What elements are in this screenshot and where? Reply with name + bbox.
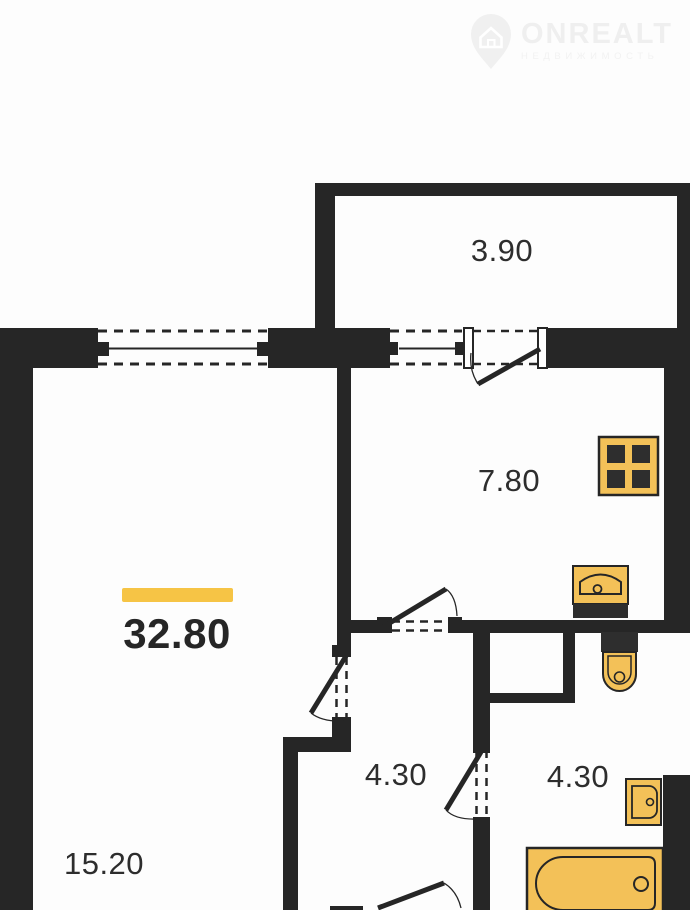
window-kitchen bbox=[385, 331, 468, 364]
door-frame-post bbox=[464, 328, 473, 368]
stove-burner bbox=[607, 470, 625, 488]
floor-plan-page: ONREALT НЕДВИЖИМОСТЬ 32.80 3.90 7.80 4.3… bbox=[0, 0, 690, 910]
door-leaf bbox=[478, 349, 540, 384]
wall bbox=[283, 737, 351, 752]
wall bbox=[351, 620, 377, 633]
entrance-door bbox=[378, 883, 461, 908]
wall bbox=[448, 617, 462, 633]
living-room-door bbox=[311, 656, 347, 721]
stove-burner bbox=[632, 445, 650, 463]
window-end-cap bbox=[257, 342, 271, 356]
total-area-label: 32.80 bbox=[123, 610, 231, 658]
window-end-cap bbox=[385, 342, 398, 355]
toilet-tank bbox=[601, 632, 638, 652]
wall bbox=[664, 362, 690, 633]
wall bbox=[462, 620, 664, 633]
door-swing-arc bbox=[446, 589, 457, 616]
wall bbox=[268, 328, 390, 368]
sink-body bbox=[573, 566, 628, 604]
sink-icon bbox=[573, 566, 628, 618]
sink-base bbox=[573, 604, 628, 618]
kitchen-door bbox=[383, 589, 457, 631]
bathtub-icon bbox=[527, 848, 663, 910]
door-leaf bbox=[311, 656, 346, 713]
wall bbox=[315, 183, 690, 196]
total-area-underline bbox=[122, 588, 233, 602]
stove-icon bbox=[599, 437, 658, 495]
room-area-label-kitchen: 7.80 bbox=[478, 463, 540, 499]
wall bbox=[663, 775, 690, 910]
wall bbox=[473, 632, 490, 742]
wall bbox=[330, 906, 363, 910]
wall bbox=[677, 196, 690, 328]
room-area-label-balcony: 3.90 bbox=[471, 233, 533, 269]
wall bbox=[332, 717, 351, 737]
wall bbox=[337, 367, 351, 645]
room-area-label-bathroom: 4.30 bbox=[547, 759, 609, 795]
wall bbox=[0, 328, 33, 910]
room-area-label-living-room: 15.20 bbox=[64, 846, 144, 882]
door-swing-arc bbox=[444, 883, 461, 908]
wall bbox=[563, 632, 575, 693]
stove-burner bbox=[632, 470, 650, 488]
wall bbox=[332, 645, 351, 657]
bathroom-door bbox=[446, 742, 490, 828]
wall bbox=[488, 693, 575, 703]
stove-burner bbox=[607, 445, 625, 463]
toilet-icon bbox=[601, 632, 638, 691]
door-leaf bbox=[378, 883, 444, 908]
window-end-cap bbox=[95, 342, 109, 356]
wall bbox=[473, 828, 490, 910]
washbasin-icon bbox=[626, 779, 661, 825]
room-area-label-hallway: 4.30 bbox=[365, 757, 427, 793]
wall bbox=[283, 752, 298, 910]
window-living-room bbox=[95, 331, 271, 364]
balcony-door bbox=[464, 328, 547, 384]
wall bbox=[315, 183, 335, 328]
